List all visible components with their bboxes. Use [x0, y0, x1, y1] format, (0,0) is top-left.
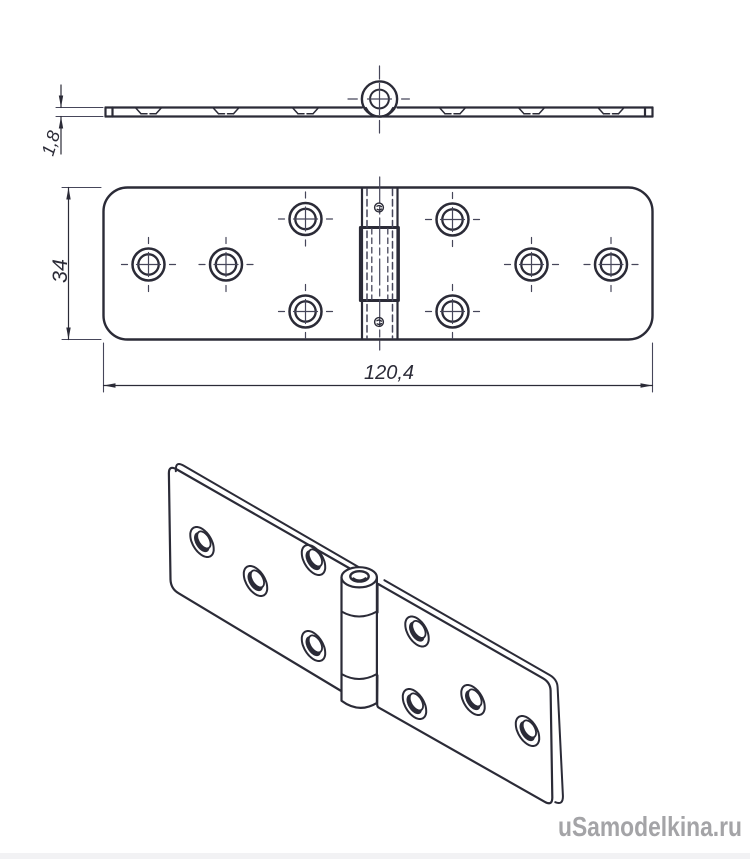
svg-text:uSamodelkina.ru: uSamodelkina.ru	[558, 811, 742, 842]
svg-text:34: 34	[48, 259, 72, 283]
svg-text:120,4: 120,4	[364, 362, 414, 384]
